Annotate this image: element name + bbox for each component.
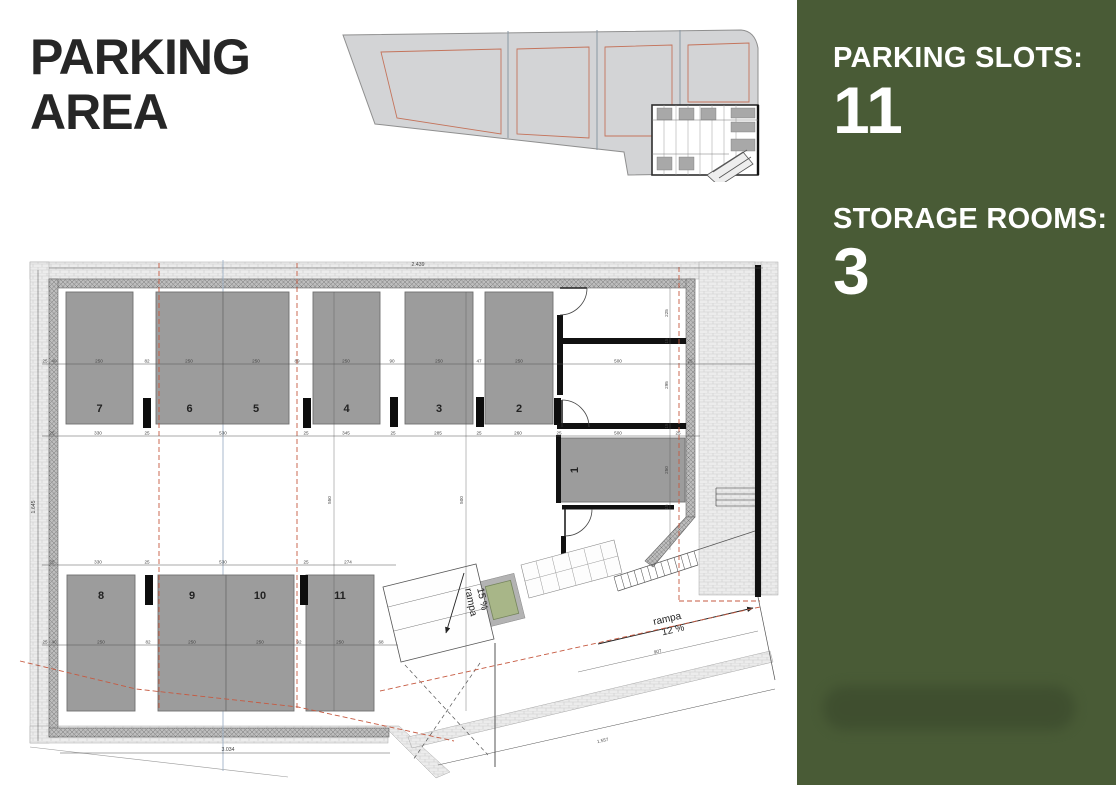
dim: 500 <box>614 431 622 436</box>
slot-number-4: 4 <box>343 403 350 415</box>
dim: 82 <box>144 359 150 364</box>
dim: 25 <box>687 359 693 364</box>
neighbor-wall <box>755 265 761 597</box>
dim: 25 <box>303 560 309 565</box>
dim: 330 <box>94 431 102 436</box>
dim: 25 <box>144 560 150 565</box>
dim: 68 <box>378 640 384 645</box>
slot-number-5: 5 <box>253 403 259 415</box>
page-title: PARKING AREA <box>30 30 310 140</box>
stats-panel: PARKING SLOTS: 11 STORAGE ROOMS: 3 <box>797 0 1116 785</box>
paving-strip <box>521 540 622 598</box>
dim: 250 <box>95 359 103 364</box>
mini-garage <box>652 105 758 182</box>
slot-number-1: 1 <box>569 467 581 473</box>
dim: 15 <box>664 423 669 429</box>
slot-number-9: 9 <box>189 590 195 602</box>
parking-floor-plan: rampa 15 % rampa 12 % <box>18 255 780 779</box>
dim: 250 <box>336 640 344 645</box>
mini-site-plan <box>341 24 761 182</box>
dim: 250 <box>185 359 193 364</box>
dim: 250 <box>664 466 669 474</box>
dim-top: 2.439 <box>412 262 425 268</box>
dim: 25 <box>476 431 482 436</box>
dim-bottom: 3.034 <box>222 747 235 753</box>
ramp-15-block: rampa 15 % <box>383 564 494 662</box>
dim: 25 <box>49 431 55 436</box>
slot-number-6: 6 <box>186 403 192 415</box>
slot-number-8: 8 <box>98 590 104 602</box>
dim: 530 <box>219 560 227 565</box>
parking-slots-label: PARKING SLOTS: <box>833 42 1083 75</box>
dim: 25 <box>390 431 396 436</box>
dim: 89 <box>294 359 300 364</box>
dim: 260 <box>514 431 522 436</box>
dim: 500 <box>614 359 622 364</box>
parking-slots-bottom-row <box>67 575 374 711</box>
dim: 25 <box>303 431 309 436</box>
dim: 15 <box>664 504 669 510</box>
dim: 1.557 <box>596 737 609 745</box>
dim: 15 <box>664 338 669 344</box>
parking-slots-stat: PARKING SLOTS: 11 <box>833 42 1083 143</box>
dim: 295 <box>664 381 669 389</box>
parking-slots-value: 11 <box>833 77 1083 143</box>
logo-watermark <box>823 686 1075 730</box>
dim: 330 <box>94 560 102 565</box>
dim: 250 <box>515 359 523 364</box>
dim: 500 <box>459 496 464 504</box>
dim: 25 <box>556 431 562 436</box>
dim: 90 <box>389 359 395 364</box>
dim: 907 <box>653 648 662 655</box>
pillars <box>143 397 561 605</box>
dim: 25 <box>144 431 150 436</box>
dim: 92 <box>296 640 302 645</box>
slot-number-2: 2 <box>516 403 522 415</box>
dim: 25 <box>42 359 48 364</box>
slot-numbers: 7 6 5 4 3 2 8 9 10 11 1 <box>96 403 581 602</box>
site-boundary-line-sw <box>30 747 288 777</box>
storage-rooms-label: STORAGE ROOMS: <box>833 203 1107 236</box>
dim: 40 <box>51 359 57 364</box>
dim: 274 <box>344 560 352 565</box>
site-boundary-line <box>758 597 775 680</box>
dim: 225 <box>664 309 669 317</box>
storage-rooms-value: 3 <box>833 238 1107 304</box>
slot-number-10: 10 <box>254 590 266 602</box>
storage-rooms-stat: STORAGE ROOMS: 3 <box>833 203 1107 304</box>
slot-number-11: 11 <box>334 590 346 602</box>
slot-number-3: 3 <box>436 403 442 415</box>
dim: 25 <box>675 431 681 436</box>
dim: 345 <box>342 431 350 436</box>
dim-left: 1.645 <box>31 500 37 513</box>
dim: 25 <box>42 640 48 645</box>
dim: 250 <box>252 359 260 364</box>
dim: 250 <box>188 640 196 645</box>
dim: 250 <box>435 359 443 364</box>
dim: 250 <box>97 640 105 645</box>
dim: 250 <box>342 359 350 364</box>
dim: 25 <box>49 560 55 565</box>
slot-number-7: 7 <box>96 403 102 415</box>
dim: 82 <box>145 640 151 645</box>
dim: 40 <box>51 640 57 645</box>
slide: PARKING AREA <box>0 0 1116 785</box>
dim: 47 <box>476 359 482 364</box>
dim: 530 <box>219 431 227 436</box>
dim: 550 <box>327 496 332 504</box>
dim: 285 <box>434 431 442 436</box>
dim: 250 <box>256 640 264 645</box>
ramp-12: rampa 12 % <box>598 608 753 644</box>
